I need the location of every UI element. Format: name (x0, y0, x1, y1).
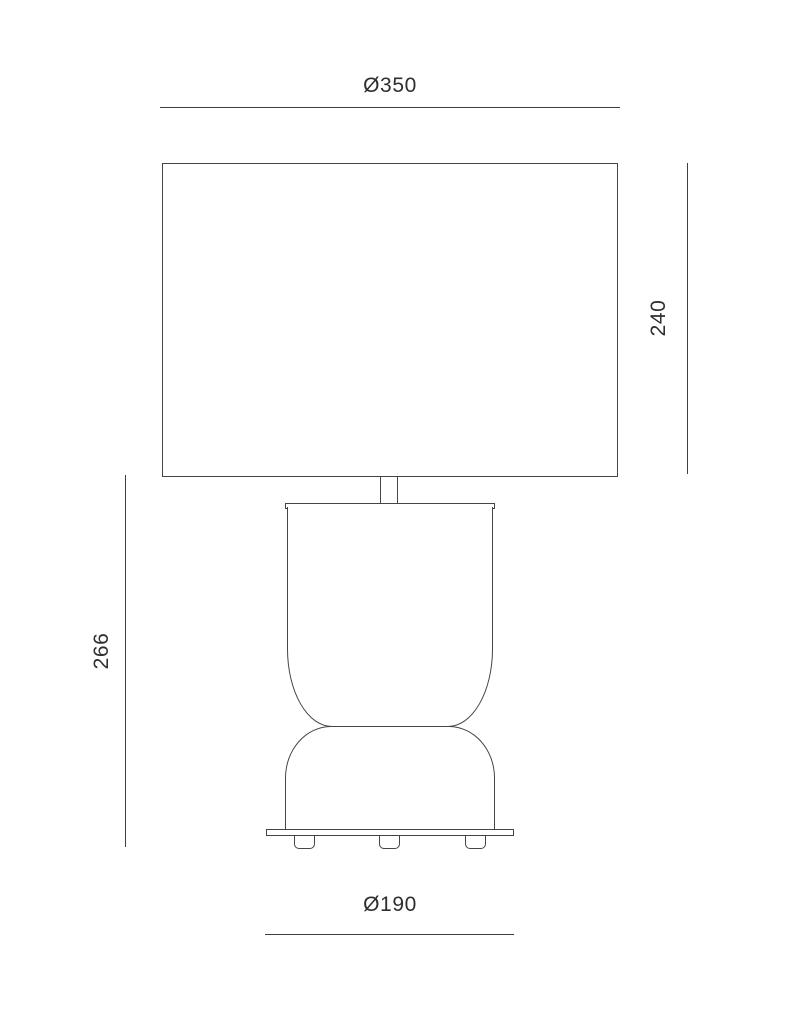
lamp-body-outline (287, 507, 493, 727)
body-height-dimension-line (125, 475, 126, 847)
body-height-label: 266 (91, 576, 113, 726)
lamp-dimension-drawing: Ø350 240 266 Ø190 (0, 0, 810, 1024)
right-foot-outline (465, 835, 486, 849)
shade-diameter-label: Ø350 (315, 75, 465, 97)
lampshade-outline (162, 163, 618, 477)
center-foot-outline (379, 835, 400, 849)
left-foot-outline (294, 835, 315, 849)
base-plate-outline (266, 829, 514, 836)
shade-height-dimension-line (687, 163, 688, 474)
base-dome-outline (285, 726, 495, 830)
shade-diameter-dimension-line (160, 107, 620, 108)
lamp-stem-outline (380, 477, 398, 504)
base-diameter-dimension-line (265, 934, 514, 935)
shade-height-label: 240 (648, 243, 670, 393)
base-diameter-label: Ø190 (315, 894, 465, 916)
